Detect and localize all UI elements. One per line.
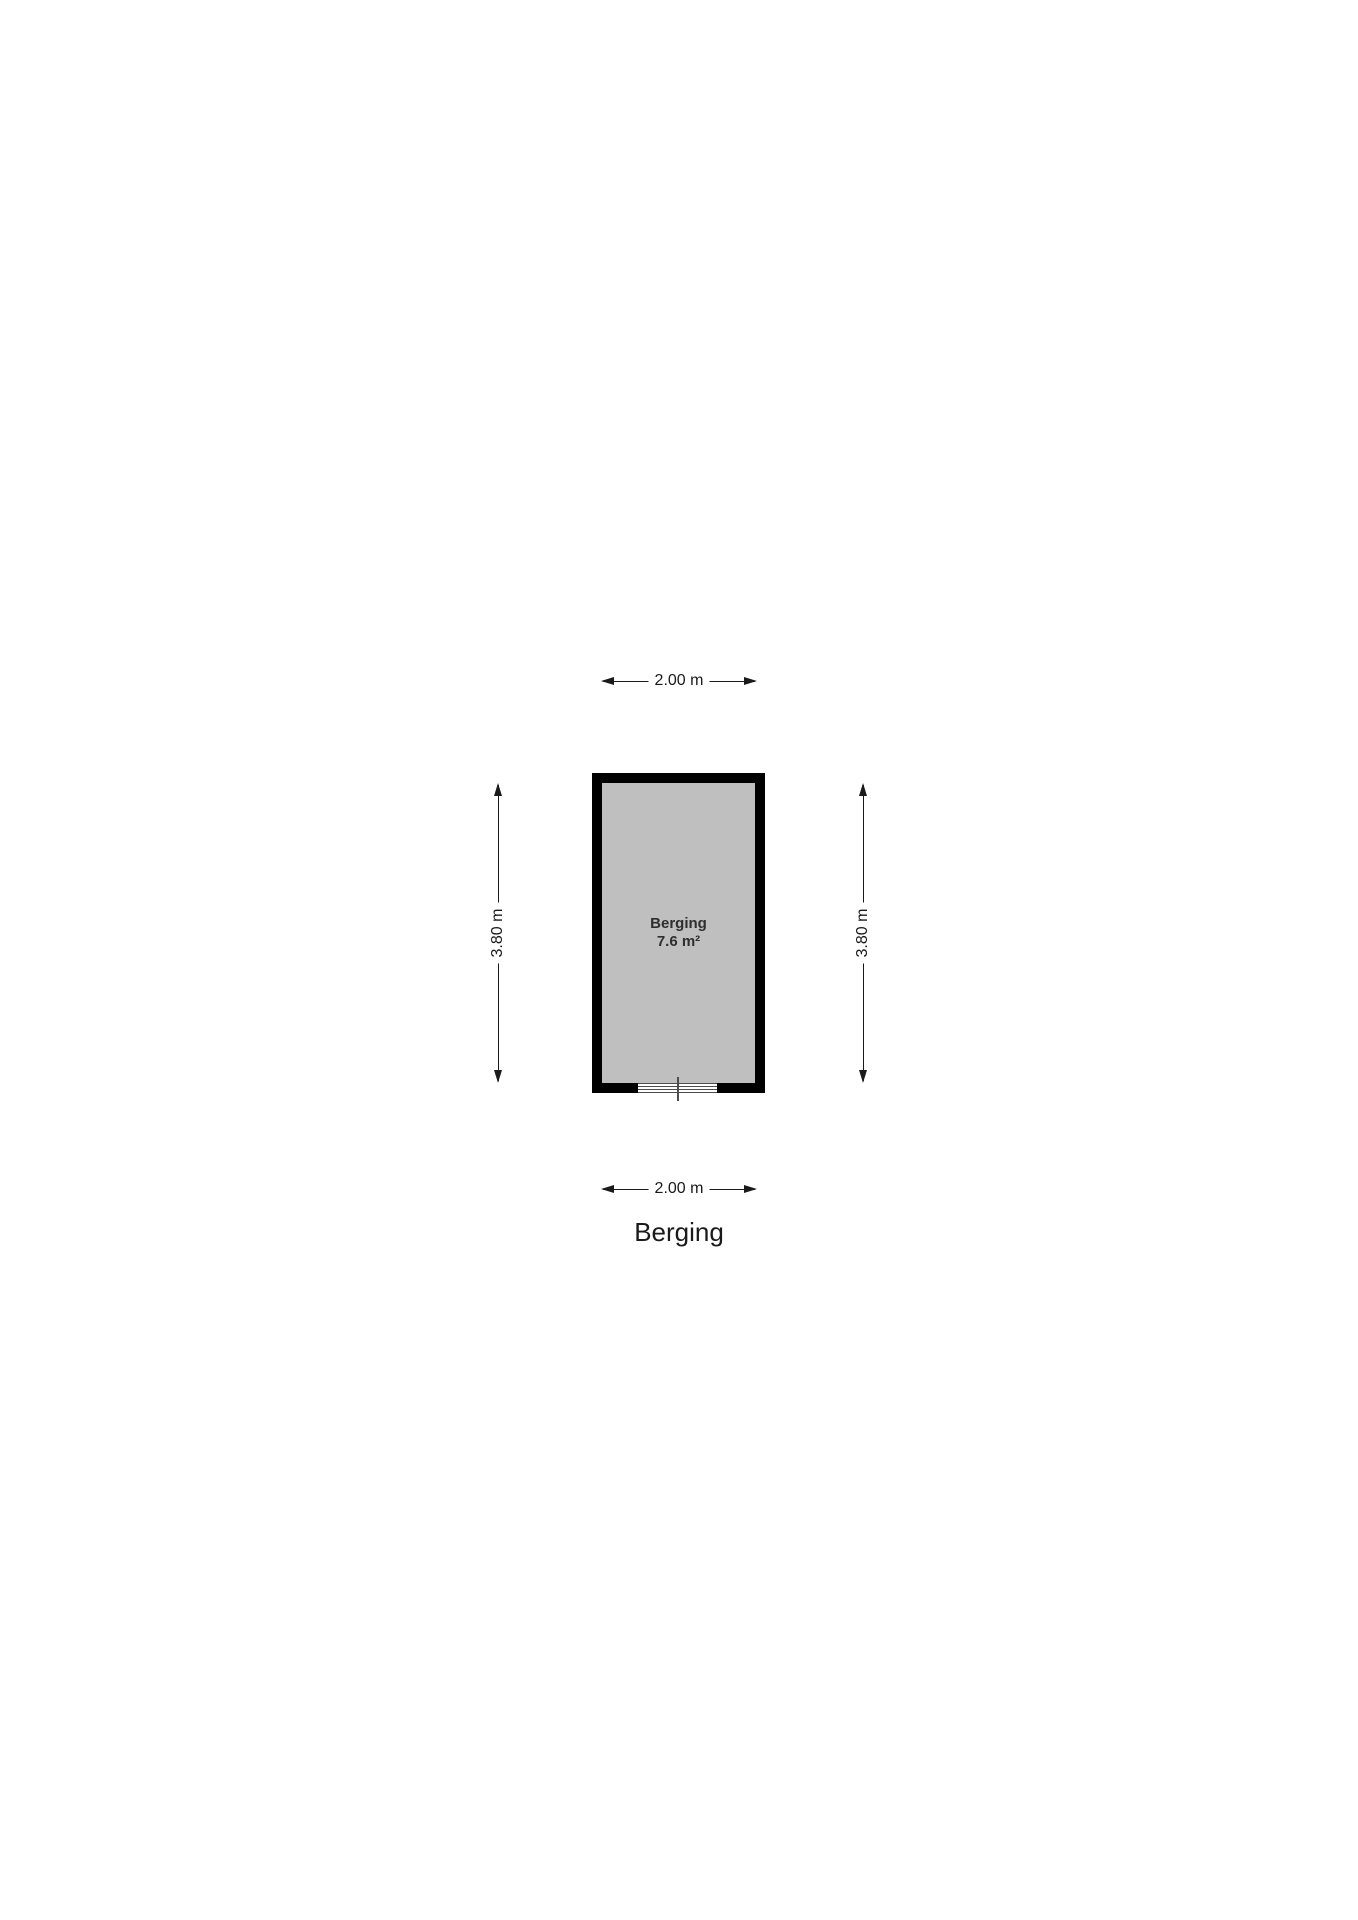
room-name: Berging bbox=[650, 915, 707, 933]
arrow-left-icon bbox=[601, 1185, 614, 1193]
arrow-right-icon bbox=[744, 677, 757, 685]
dimension-width-bottom: 2.00 m bbox=[601, 1176, 757, 1201]
dimension-label: 3.80 m bbox=[489, 903, 507, 964]
dimension-height-right: 3.80 m bbox=[850, 783, 875, 1083]
room-label: Berging 7.6 m² bbox=[650, 915, 707, 951]
dimension-label: 2.00 m bbox=[649, 1180, 710, 1198]
plan-title: Berging bbox=[529, 1217, 829, 1248]
floorplan-canvas: 2.00 m 3.80 m 3.80 m Berging 7.6 m² 2.00… bbox=[0, 0, 1358, 1920]
dimension-height-left: 3.80 m bbox=[485, 783, 510, 1083]
dimension-width-top: 2.00 m bbox=[601, 668, 757, 693]
door-marker-line bbox=[677, 1077, 679, 1101]
arrow-down-icon bbox=[859, 1070, 867, 1083]
dimension-label: 2.00 m bbox=[649, 672, 710, 690]
arrow-right-icon bbox=[744, 1185, 757, 1193]
arrow-left-icon bbox=[601, 677, 614, 685]
arrow-up-icon bbox=[494, 783, 502, 796]
dimension-label: 3.80 m bbox=[854, 903, 872, 964]
room-area: 7.6 m² bbox=[650, 933, 707, 951]
room-berging: Berging 7.6 m² bbox=[592, 773, 765, 1093]
arrow-down-icon bbox=[494, 1070, 502, 1083]
arrow-up-icon bbox=[859, 783, 867, 796]
